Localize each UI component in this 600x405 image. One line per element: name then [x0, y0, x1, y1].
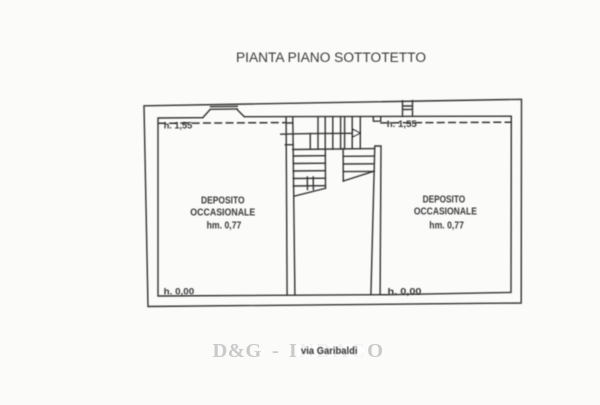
svg-text:hm. 0,77: hm. 0,77	[429, 221, 464, 232]
svg-text:h. 1,55: h. 1,55	[387, 119, 417, 129]
svg-text:h. 0,00: h. 0,00	[388, 287, 422, 297]
svg-text:DEPOSITO: DEPOSITO	[423, 195, 466, 206]
svg-text:PIANTA PIANO SOTTOTETTO: PIANTA PIANO SOTTOTETTO	[236, 50, 426, 65]
svg-text:hm. 0,77: hm. 0,77	[207, 221, 242, 232]
svg-text:OCCASIONALE: OCCASIONALE	[414, 206, 477, 217]
svg-text:h. 1,55: h. 1,55	[164, 120, 193, 130]
svg-text:via Garibaldi: via Garibaldi	[301, 345, 358, 357]
svg-text:DEPOSITO: DEPOSITO	[201, 196, 245, 207]
svg-text:OCCASIONALE: OCCASIONALE	[190, 208, 255, 219]
svg-text:h. 0,00: h. 0,00	[164, 287, 195, 297]
